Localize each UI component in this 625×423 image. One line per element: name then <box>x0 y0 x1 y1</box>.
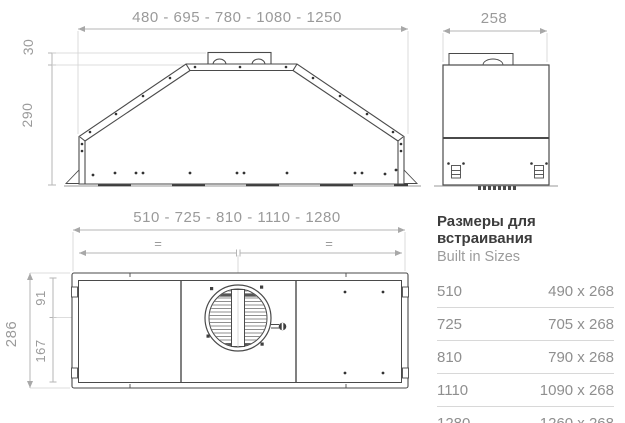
cutout-size: 790 x 268 <box>548 349 614 366</box>
left-bracket <box>452 166 461 179</box>
front-ground-line <box>64 185 421 186</box>
table-row: 1110 1090 x 268 <box>437 374 614 407</box>
left-foot <box>66 170 79 184</box>
center-back-label: 167 <box>33 339 48 362</box>
table-rows: 510 490 x 268 725 705 x 268 810 790 x 26… <box>437 275 614 423</box>
right-bracket <box>535 166 544 179</box>
right-clip-bottom <box>403 368 409 378</box>
builtin-sizes-table: Размеры для встраивания Built in Sizes 5… <box>437 213 614 423</box>
cutout-size: 705 x 268 <box>548 316 614 333</box>
table-row: 1280 1260 x 268 <box>437 407 614 423</box>
equal-mark-left: = <box>154 236 162 251</box>
plan-view-drawing: 510 - 725 - 810 - 1110 - 1280 = = 286 <box>0 200 435 423</box>
center-front-label: 91 <box>33 290 48 305</box>
duct-box <box>208 53 271 65</box>
side-view-drawing: 258 <box>430 0 625 200</box>
duct-box-side <box>449 54 513 66</box>
table-title: Размеры для встраивания <box>437 213 614 247</box>
plan-width-dimension: 510 - 725 - 810 - 1110 - 1280 <box>73 209 405 271</box>
hood-front-outline <box>66 53 417 185</box>
right-foot <box>404 170 417 184</box>
model-width: 510 <box>437 283 462 300</box>
model-width: 1280 <box>437 415 470 423</box>
side-depth-label: 258 <box>481 10 508 27</box>
depth-total-label: 286 <box>3 321 20 348</box>
duct-height-label: 30 <box>20 39 36 56</box>
hood-side-outline <box>443 54 549 186</box>
body-height-label: 290 <box>19 103 35 128</box>
left-clip-top <box>72 287 78 297</box>
model-width: 810 <box>437 349 462 366</box>
table-subtitle: Built in Sizes <box>437 249 614 266</box>
left-clip-bottom <box>72 368 78 378</box>
cutout-size: 1260 x 268 <box>540 415 614 423</box>
table-row: 810 790 x 268 <box>437 341 614 374</box>
front-width-label: 480 - 695 - 780 - 1080 - 1250 <box>132 9 342 26</box>
plan-width-label: 510 - 725 - 810 - 1110 - 1280 <box>133 209 340 226</box>
model-width: 1110 <box>437 382 468 399</box>
table-row: 725 705 x 268 <box>437 308 614 341</box>
model-width: 725 <box>437 316 462 333</box>
equal-mark-right: = <box>325 236 333 251</box>
side-ground-line <box>434 186 558 188</box>
cutout-size: 1090 x 268 <box>540 382 614 399</box>
technical-drawing-page: 480 - 695 - 780 - 1080 - 1250 30 290 <box>0 0 625 423</box>
table-row: 510 490 x 268 <box>437 275 614 308</box>
cutout-size: 490 x 268 <box>548 283 614 300</box>
right-clip-top <box>403 287 409 297</box>
front-view-drawing: 480 - 695 - 780 - 1080 - 1250 30 290 <box>0 0 430 200</box>
